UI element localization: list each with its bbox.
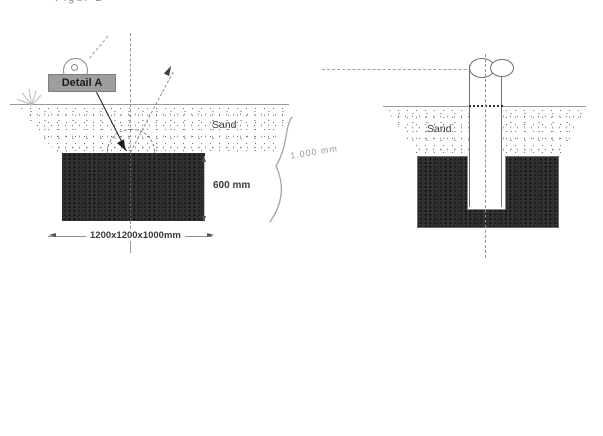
- dim-600-arrow-down-icon: [202, 216, 206, 225]
- anchor-arrowhead-icon: [164, 62, 175, 76]
- dim-600-arrow-up-icon: [202, 153, 206, 162]
- right-diagram: Sand: [310, 0, 603, 280]
- foundation-block: [62, 153, 205, 221]
- dim-600-line: [204, 156, 205, 220]
- ground-dotted-line: [469, 105, 503, 107]
- dim-footing-centertick: [130, 242, 131, 253]
- detail-callout-dot-icon: [71, 64, 78, 71]
- dim-footing-label: 1200x1200x1000mm: [86, 230, 185, 241]
- pole-top-loop-right-icon: [490, 59, 514, 77]
- brace-curve: [262, 114, 298, 226]
- ground-line: [10, 104, 289, 105]
- sand-label-right: Sand: [427, 123, 452, 135]
- detail-label: Detail A: [48, 74, 116, 92]
- dim-600-label: 600 mm: [213, 180, 250, 191]
- left-diagram: Sand Detail A 600: [0, 0, 350, 280]
- center-line-in-block: [130, 153, 131, 221]
- callout-dashed-tail: [89, 36, 108, 59]
- pole-centerline: [485, 54, 486, 258]
- figure-canvas: Figur B Sand Detail A: [0, 0, 603, 436]
- dim-footing-arrow-left-icon: [46, 233, 56, 237]
- sand-label: Sand: [212, 119, 237, 131]
- dim-footing-arrow-right-icon: [207, 233, 217, 237]
